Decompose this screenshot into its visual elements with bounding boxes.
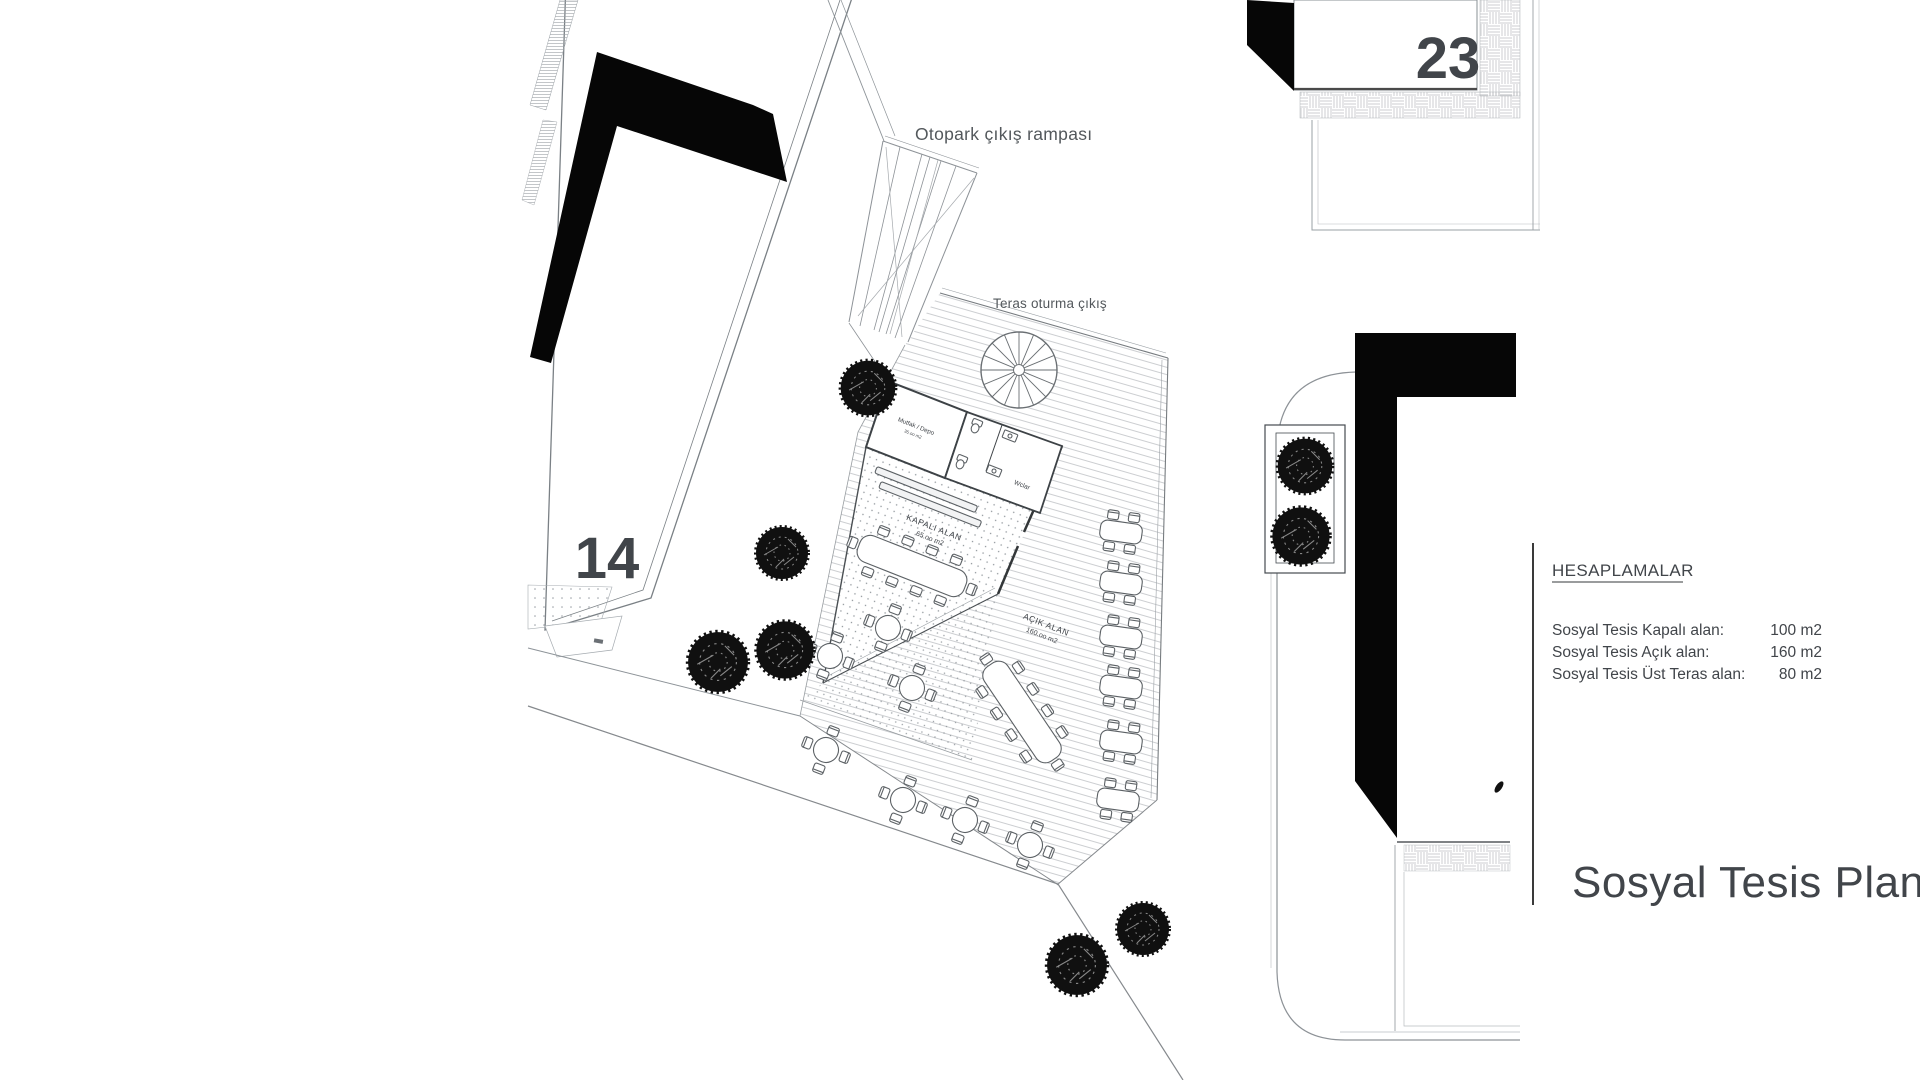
calc-row-label: Sosyal Tesis Açık alan:: [1552, 644, 1709, 661]
lower-plot-inner: [1404, 872, 1520, 1026]
tree: [688, 632, 748, 692]
weave-band-bottom: [1300, 92, 1520, 118]
spiral-stair: [981, 332, 1057, 408]
plan-title: Sosyal Tesis Planı: [1572, 858, 1920, 907]
tree: [1117, 903, 1169, 955]
tree: [1272, 507, 1329, 564]
tree: [1047, 935, 1107, 995]
building-23-roof-shadow: [1247, 0, 1294, 91]
calculations-block: HESAPLAMALAR Sosyal Tesis Kapalı alan: 1…: [1552, 561, 1822, 683]
clipped-number-mark: [1493, 780, 1505, 794]
calc-row-value: 80 m2: [1779, 666, 1822, 683]
building-23-lot: 23: [1247, 0, 1540, 230]
lot-boundary-a: [828, 0, 884, 141]
calculations-heading: HESAPLAMALAR: [1552, 561, 1694, 580]
lot-boundary-b: [841, 0, 895, 136]
calc-row-label: Sosyal Tesis Üst Teras alan:: [1552, 665, 1745, 683]
teras-exit-label: Teras oturma çıkış: [993, 296, 1107, 311]
tree: [756, 621, 813, 678]
calc-row-value: 100 m2: [1770, 622, 1822, 639]
plot-boundary: [1312, 120, 1540, 230]
site-plan-canvas: 14 Otopark çıkış rampası: [0, 0, 1920, 1080]
building-23-number: 23: [1416, 26, 1481, 91]
otopark-ramp-label: Otopark çıkış rampası: [915, 124, 1092, 144]
tree: [756, 527, 808, 579]
plot-boundary-inner: [1318, 120, 1540, 224]
building-14-number: 14: [575, 526, 640, 591]
right-building-lot: [1265, 333, 1520, 1040]
tree: [841, 361, 896, 416]
paving-hatch-strip-mid: [522, 120, 557, 205]
weave-band-under: [1404, 845, 1510, 871]
calc-row-value: 160 m2: [1770, 644, 1822, 661]
weave-band-right: [1480, 0, 1520, 96]
tree: [1278, 439, 1333, 494]
calc-row-label: Sosyal Tesis Kapalı alan:: [1552, 622, 1724, 639]
right-building-roof-shadow: [1355, 333, 1516, 838]
